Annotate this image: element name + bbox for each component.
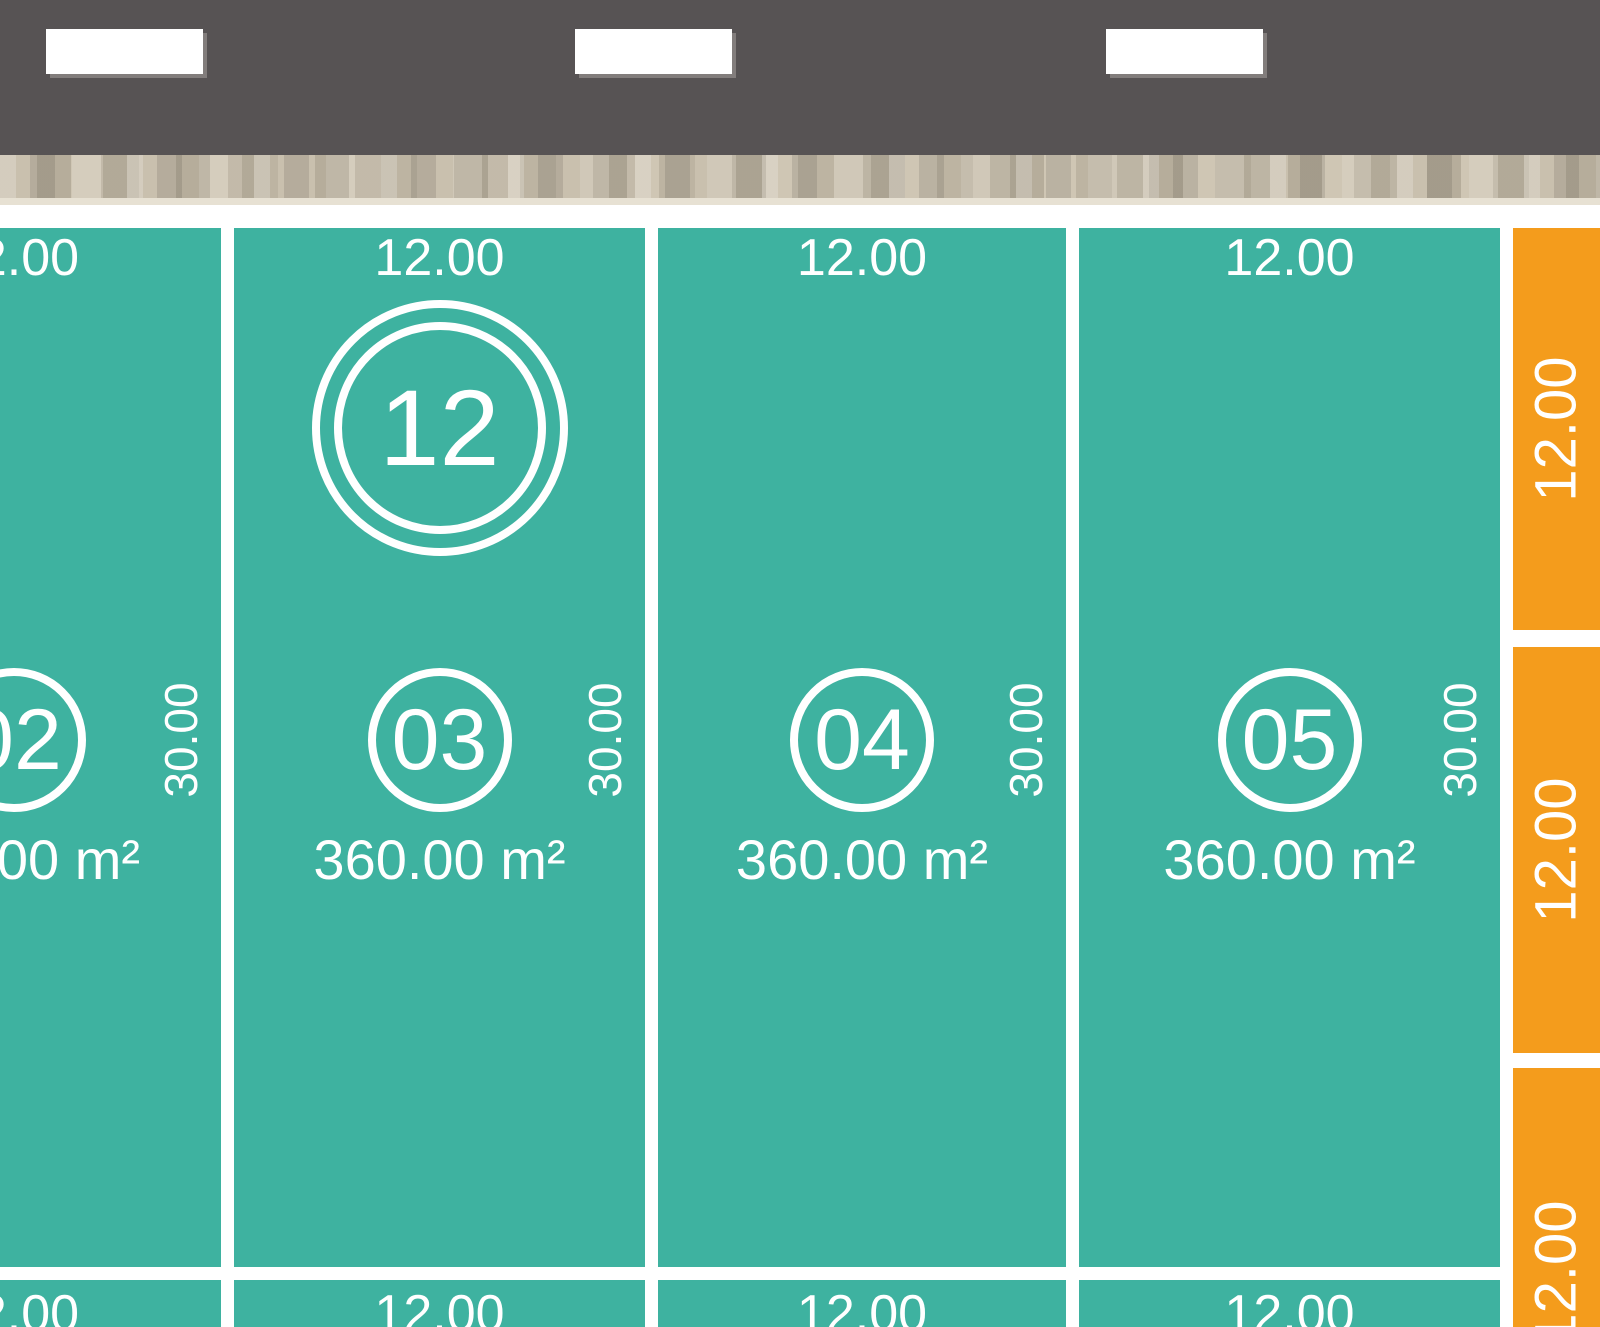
lot-04-number-badge: 04 bbox=[790, 668, 934, 812]
side-parcel-2-width: 12.00 bbox=[1528, 777, 1586, 922]
row2-front-dimension: 12.00 bbox=[1079, 1288, 1500, 1327]
block-number: 12 bbox=[379, 374, 499, 482]
lot-03-number: 03 bbox=[392, 697, 488, 783]
lot-05-number-badge: 05 bbox=[1218, 668, 1362, 812]
curb-edge bbox=[0, 198, 1600, 205]
side-parcel-1[interactable]: 12.00 bbox=[1513, 228, 1600, 630]
lot-02-area: 360.00 m² bbox=[0, 832, 221, 888]
road bbox=[0, 0, 1600, 155]
lot-02-number-badge: 02 bbox=[0, 668, 86, 812]
curb-paver-strip bbox=[0, 155, 1600, 198]
lot-04-front-dimension: 12.00 bbox=[658, 232, 1066, 284]
lane-marking bbox=[46, 29, 203, 74]
lot-02-number: 02 bbox=[0, 697, 62, 783]
lot-02[interactable]: 12.00 02 30.00 360.00 m² bbox=[0, 228, 221, 1267]
lot-05[interactable]: 12.00 05 30.00 360.00 m² bbox=[1079, 228, 1500, 1267]
site-plan-canvas: 12.00 02 30.00 360.00 m² 12.00 12 03 30.… bbox=[0, 0, 1600, 1327]
lot-03-front-dimension: 12.00 bbox=[234, 232, 645, 284]
lot-row2-under-02[interactable]: 12.00 bbox=[0, 1280, 221, 1327]
lot-row2-under-05[interactable]: 12.00 bbox=[1079, 1280, 1500, 1327]
lane-marking bbox=[575, 29, 732, 74]
lot-03-number-badge: 03 bbox=[368, 668, 512, 812]
lot-04-area: 360.00 m² bbox=[658, 832, 1066, 888]
row2-front-dimension: 12.00 bbox=[658, 1288, 1066, 1327]
lot-row2-under-03[interactable]: 12.00 bbox=[234, 1280, 645, 1327]
lot-05-side-dimension: 30.00 bbox=[1437, 682, 1483, 797]
lot-05-front-dimension: 12.00 bbox=[1079, 232, 1500, 284]
lot-03-area: 360.00 m² bbox=[234, 832, 645, 888]
side-parcel-3-width: 12.00 bbox=[1528, 1200, 1586, 1327]
lane-marking bbox=[1106, 29, 1263, 74]
side-parcel-1-width: 12.00 bbox=[1528, 356, 1586, 501]
lot-05-area: 360.00 m² bbox=[1079, 832, 1500, 888]
side-parcel-3[interactable]: 12.00 bbox=[1513, 1068, 1600, 1327]
lot-05-number: 05 bbox=[1242, 697, 1338, 783]
lot-row2-under-04[interactable]: 12.00 bbox=[658, 1280, 1066, 1327]
lot-03-side-dimension: 30.00 bbox=[582, 682, 628, 797]
block-number-badge: 12 bbox=[312, 300, 568, 556]
lot-02-front-dimension: 12.00 bbox=[0, 232, 221, 284]
row2-front-dimension: 12.00 bbox=[234, 1288, 645, 1327]
lot-02-side-dimension: 30.00 bbox=[158, 682, 204, 797]
lot-03[interactable]: 12.00 12 03 30.00 360.00 m² bbox=[234, 228, 645, 1267]
row2-front-dimension: 12.00 bbox=[0, 1288, 221, 1327]
lot-04[interactable]: 12.00 04 30.00 360.00 m² bbox=[658, 228, 1066, 1267]
lot-04-side-dimension: 30.00 bbox=[1003, 682, 1049, 797]
block-number-inner-ring: 12 bbox=[334, 322, 546, 534]
side-parcel-2[interactable]: 12.00 bbox=[1513, 647, 1600, 1053]
lot-04-number: 04 bbox=[814, 697, 910, 783]
